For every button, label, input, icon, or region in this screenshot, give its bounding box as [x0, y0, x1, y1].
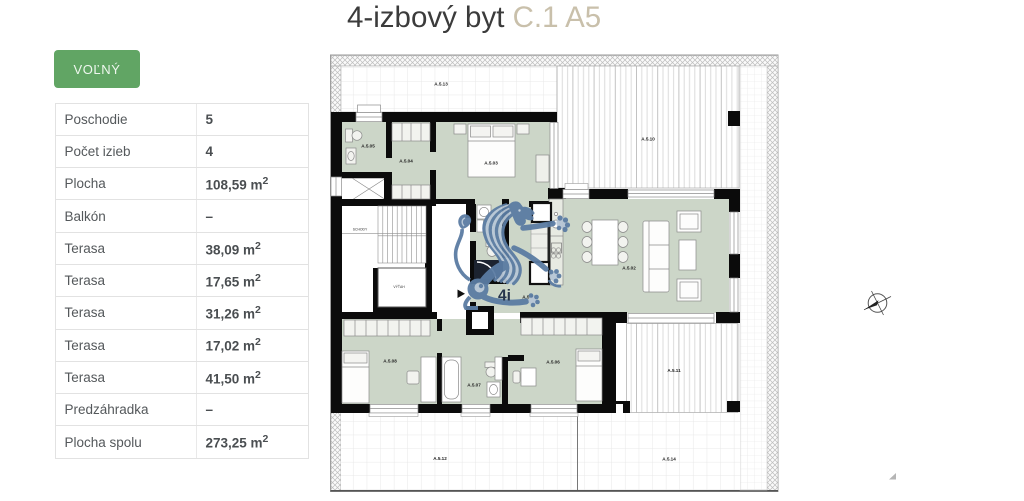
- svg-text:A.5.04: A.5.04: [399, 159, 413, 164]
- svg-text:A.5.06: A.5.06: [546, 360, 560, 365]
- svg-text:A.5.11: A.5.11: [667, 368, 681, 373]
- svg-text:A.5.08: A.5.08: [383, 359, 397, 364]
- svg-text:A.5.02: A.5.02: [622, 266, 636, 271]
- svg-text:4i: 4i: [498, 288, 511, 305]
- svg-text:A.5.05: A.5.05: [361, 144, 375, 149]
- svg-text:SCHODY: SCHODY: [353, 228, 368, 232]
- svg-text:VÝŤAH: VÝŤAH: [393, 284, 405, 289]
- svg-text:A.5.12: A.5.12: [433, 456, 447, 461]
- svg-text:A.5.10: A.5.10: [641, 137, 655, 142]
- svg-text:A.5.03: A.5.03: [484, 161, 498, 166]
- svg-text:A.5.07: A.5.07: [467, 383, 481, 388]
- svg-text:A.5.14: A.5.14: [662, 457, 676, 462]
- svg-text:A.5.13: A.5.13: [434, 82, 448, 87]
